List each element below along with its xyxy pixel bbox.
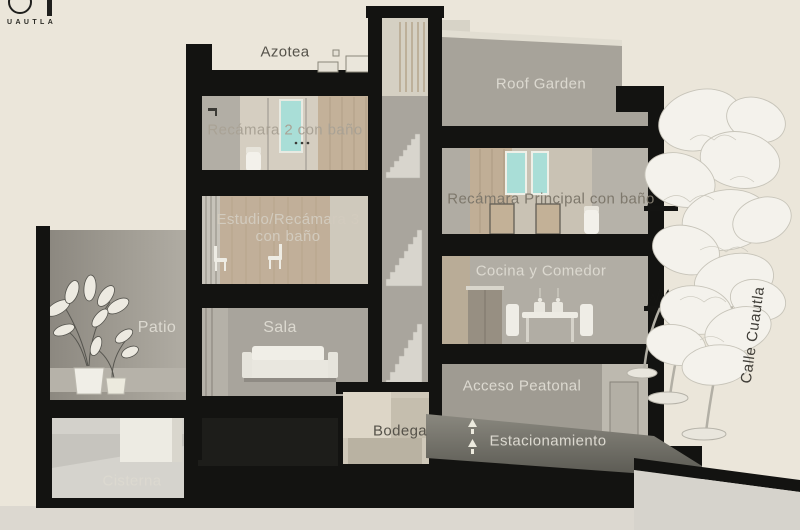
logo-subtext: UAUTLA xyxy=(7,19,56,26)
label-patio: Patio xyxy=(138,319,176,337)
studio-logo: UAUTLA xyxy=(6,0,76,34)
label-cisterna: Cisterna xyxy=(102,472,161,489)
logo-o-mark xyxy=(8,0,32,14)
label-estudio-recamara-3: Estudio/Recámara 3 con baño xyxy=(216,211,359,246)
building-section-drawing xyxy=(0,0,800,530)
toilet xyxy=(584,206,599,234)
label-azotea: Azotea xyxy=(260,43,309,60)
toilet xyxy=(246,147,261,172)
window xyxy=(506,152,526,194)
door xyxy=(490,204,514,234)
label-estudio-line1: Estudio/Recámara 3 xyxy=(216,211,359,228)
label-sala: Sala xyxy=(263,319,297,337)
label-roof-garden: Roof Garden xyxy=(496,75,586,92)
patio-area xyxy=(50,230,186,400)
label-acceso-peatonal: Acceso Peatonal xyxy=(463,377,582,394)
kitchen-cabinet xyxy=(466,286,504,344)
logo-t-mark xyxy=(47,0,52,16)
label-estacionamiento: Estacionamiento xyxy=(490,432,607,449)
patio-left-wall xyxy=(36,226,50,506)
label-recamara-2: Recámara 2 con baño xyxy=(207,121,362,138)
basement-void xyxy=(198,418,338,466)
architectural-section-scene: UAUTLA Azotea Recámara 2 con baño Estudi… xyxy=(0,0,800,530)
label-estudio-line2: con baño xyxy=(216,228,359,245)
window xyxy=(532,152,548,194)
label-recamara-principal: Recámara Principal con baño xyxy=(447,190,655,207)
door xyxy=(610,382,638,438)
sofa xyxy=(242,346,338,382)
label-bodega: Bodega xyxy=(373,422,427,439)
door xyxy=(536,204,560,234)
label-cocina-comedor: Cocina y Comedor xyxy=(476,262,607,279)
